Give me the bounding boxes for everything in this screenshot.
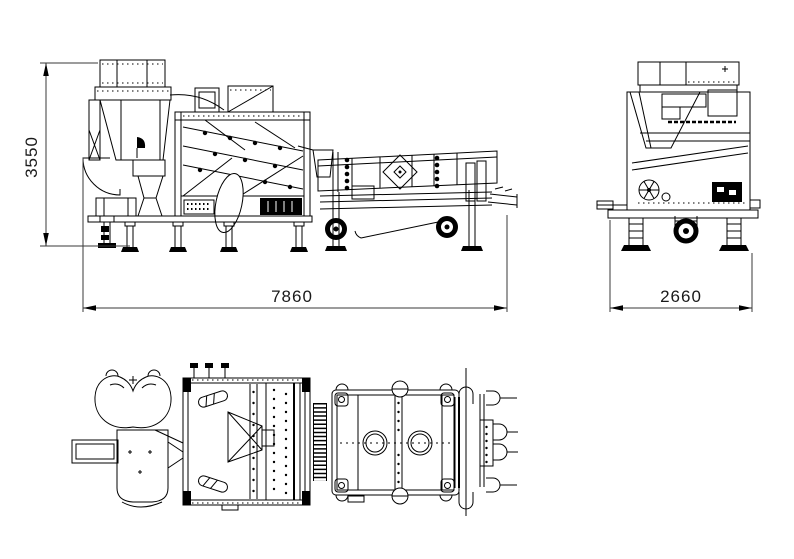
cyclone-lobes — [95, 370, 171, 428]
support-leg — [621, 218, 651, 251]
arrowhead-icon — [43, 63, 49, 76]
support-leg — [169, 222, 187, 252]
dimension-length-text: 7860 — [271, 287, 313, 306]
sieve-box — [170, 86, 310, 235]
plan-view — [72, 363, 518, 516]
feed-funnel-plan — [228, 412, 274, 462]
discharge-lip — [488, 187, 517, 208]
support-leg — [121, 222, 139, 252]
fan-body — [117, 430, 168, 507]
drawing-canvas: 3550 7860 2660 — [0, 0, 794, 559]
flow-arrow-icon — [137, 137, 145, 148]
discharge-chute — [210, 171, 248, 235]
arrowhead-icon — [43, 233, 49, 246]
vent-slot — [197, 390, 229, 409]
vibrating-conveyor — [298, 146, 517, 251]
arrowhead-icon — [739, 305, 752, 311]
pipe-stubs — [190, 363, 229, 378]
vibrating-table-plan — [332, 381, 459, 504]
machine-base — [88, 216, 312, 252]
brush-strip — [314, 403, 327, 481]
dimension-height-text: 3550 — [22, 136, 41, 178]
sieve-frame-plan — [183, 363, 310, 510]
dimension-width: 2660 — [610, 220, 752, 312]
arrowhead-icon — [494, 305, 507, 311]
end-view — [597, 62, 760, 251]
vibrator-motor — [392, 488, 408, 504]
dimension-width-text: 2660 — [660, 287, 702, 306]
tow-bar — [355, 221, 443, 238]
drive-pulley — [639, 180, 670, 201]
support-leg — [719, 218, 749, 251]
cyclone-funnel — [630, 92, 700, 148]
screen-decks — [183, 120, 303, 196]
side-view — [83, 60, 517, 252]
air-outlet-duct — [72, 440, 118, 463]
wheel — [328, 221, 345, 238]
drive-panel — [260, 198, 302, 215]
outlet-spouts — [455, 368, 518, 516]
machine-drawing: 3550 7860 2660 — [0, 0, 794, 559]
arrowhead-icon — [610, 305, 623, 311]
arrowhead-icon — [83, 305, 96, 311]
support-leg — [290, 222, 308, 252]
fan-scroll — [83, 158, 120, 195]
aspiration-column — [83, 60, 171, 248]
center-wheel — [675, 216, 697, 241]
vibrator-motor — [392, 381, 408, 397]
vent-slot — [197, 475, 229, 494]
